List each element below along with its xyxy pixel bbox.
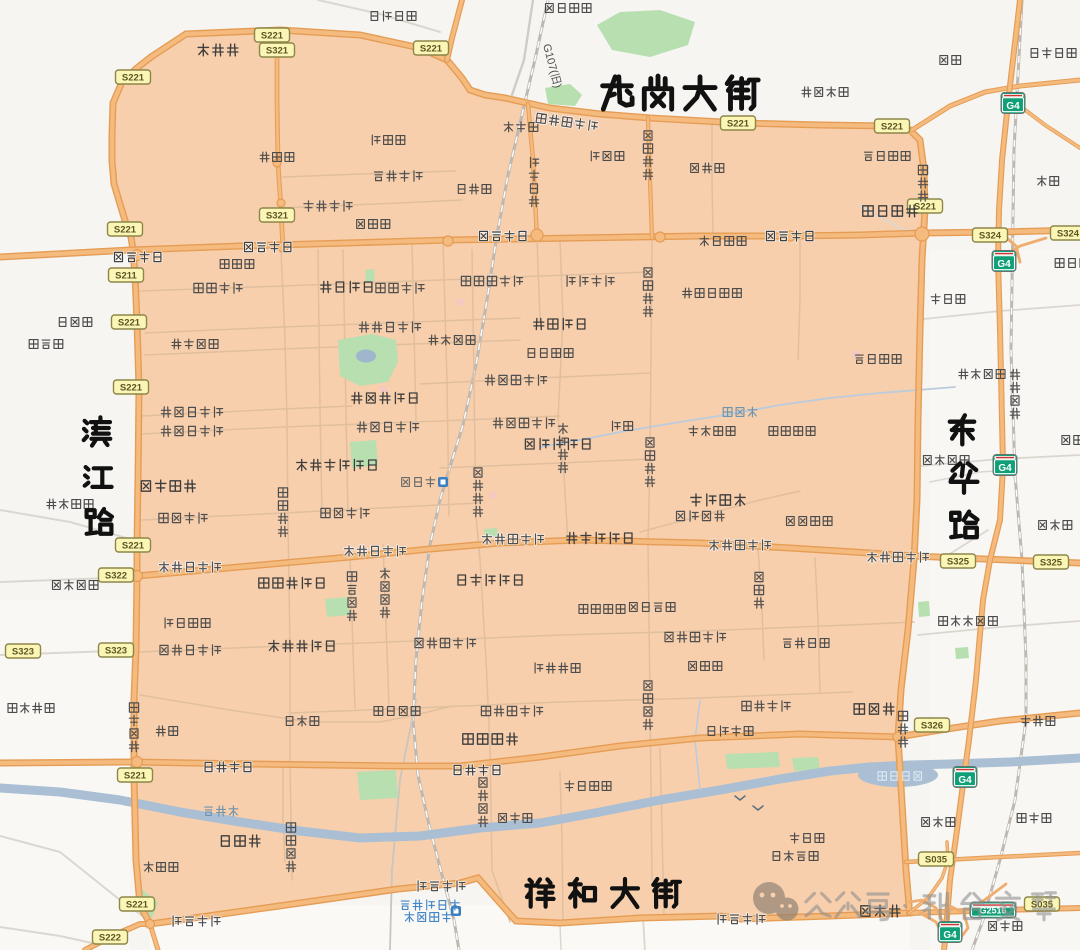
svg-text:S321: S321: [266, 210, 289, 221]
svg-text:G4: G4: [1006, 101, 1020, 112]
svg-text:S324: S324: [979, 230, 1002, 241]
svg-text:G4: G4: [958, 775, 972, 786]
svg-text:S221: S221: [881, 121, 904, 132]
svg-text:S323: S323: [105, 645, 127, 656]
svg-text:S221: S221: [118, 317, 141, 328]
svg-text:S325: S325: [1040, 557, 1063, 568]
svg-text:S325: S325: [947, 556, 970, 567]
svg-text:G4: G4: [943, 930, 957, 941]
svg-text:S221: S221: [420, 43, 443, 54]
svg-text:S326: S326: [921, 720, 943, 731]
svg-text:S211: S211: [115, 270, 137, 281]
svg-text:S221: S221: [114, 224, 137, 235]
svg-text:S324: S324: [1057, 228, 1080, 239]
svg-text:S221: S221: [122, 72, 145, 83]
svg-text:S221: S221: [120, 382, 143, 393]
svg-text:G4: G4: [998, 463, 1012, 474]
svg-text:G4: G4: [997, 259, 1011, 270]
svg-text:S221: S221: [914, 201, 937, 212]
svg-text:S221: S221: [727, 118, 750, 129]
svg-text:S221: S221: [261, 30, 284, 41]
svg-text:S221: S221: [122, 540, 145, 551]
svg-text:S222: S222: [99, 932, 121, 943]
svg-text:S323: S323: [12, 646, 34, 657]
svg-text:S321: S321: [266, 45, 289, 56]
svg-text:S035: S035: [925, 854, 948, 865]
svg-text:S322: S322: [105, 570, 127, 581]
svg-text:S221: S221: [124, 770, 147, 781]
svg-text:S221: S221: [126, 899, 149, 910]
